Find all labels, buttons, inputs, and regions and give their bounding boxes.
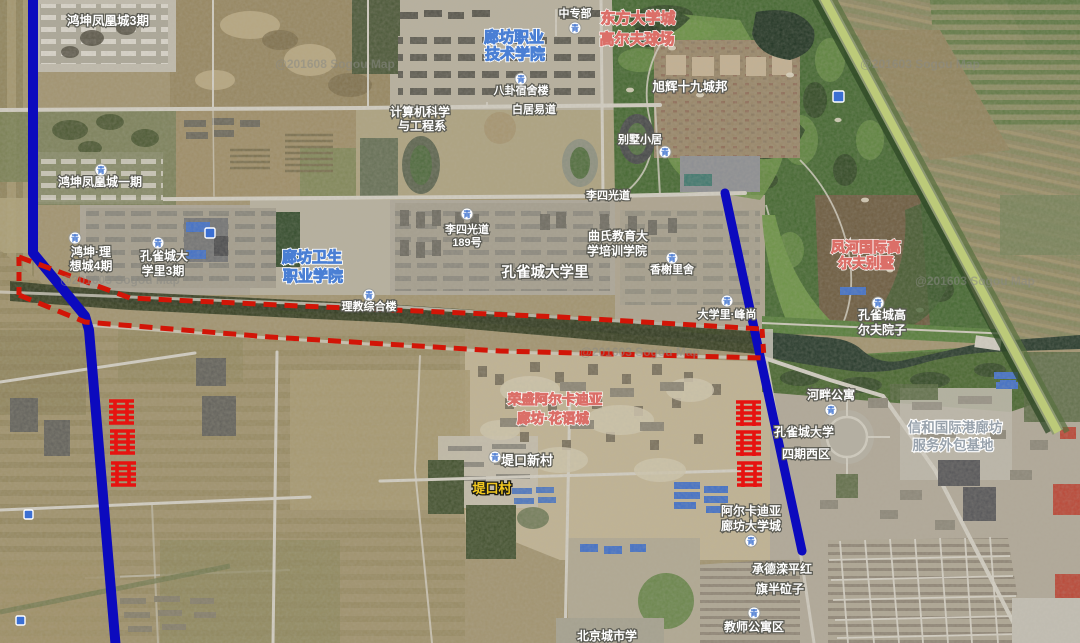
svg-text:与工程系: 与工程系 xyxy=(398,118,446,133)
svg-text:青: 青 xyxy=(747,536,755,546)
svg-text:尔夫院子: 尔夫院子 xyxy=(858,322,906,337)
svg-text:青: 青 xyxy=(874,298,882,308)
svg-text:青: 青 xyxy=(71,233,79,243)
svg-text:鸿坤凤凰城3期: 鸿坤凤凰城3期 xyxy=(67,13,149,28)
svg-text:青: 青 xyxy=(661,147,669,157)
svg-text:李四光道: 李四光道 xyxy=(585,188,630,202)
svg-text:孔雀城大学: 孔雀城大学 xyxy=(774,424,834,439)
svg-text:廊坊职业: 廊坊职业 xyxy=(484,28,544,46)
svg-text:青: 青 xyxy=(463,209,471,219)
svg-text:青: 青 xyxy=(517,74,525,84)
svg-text:廊坊卫生: 廊坊卫生 xyxy=(282,248,342,266)
svg-text:青: 青 xyxy=(154,238,162,248)
svg-text:高尔夫球场: 高尔夫球场 xyxy=(599,30,674,48)
svg-text:@201608 Sogou Map: @201608 Sogou Map xyxy=(275,57,395,71)
svg-text:堤口村: 堤口村 xyxy=(472,481,511,496)
svg-text:职业学院: 职业学院 xyxy=(283,267,343,285)
svg-text:189号: 189号 xyxy=(452,236,481,249)
svg-text:服务外包基地: 服务外包基地 xyxy=(913,437,994,453)
svg-text:孔雀城大学里: 孔雀城大学里 xyxy=(502,263,589,281)
svg-text:李四光道: 李四光道 xyxy=(444,222,489,236)
svg-text:曲氏教育大: 曲氏教育大 xyxy=(588,228,648,243)
svg-text:中专部: 中专部 xyxy=(559,6,592,20)
svg-text:青: 青 xyxy=(491,452,499,462)
svg-text:四期西区: 四期西区 xyxy=(782,446,830,461)
svg-text:承德滦平红: 承德滦平红 xyxy=(752,561,812,576)
svg-text:大学里·峰尚: 大学里·峰尚 xyxy=(698,307,757,321)
svg-text:想城4期: 想城4期 xyxy=(69,258,113,273)
svg-text:旭辉十九城邦: 旭辉十九城邦 xyxy=(651,79,728,94)
svg-text:青: 青 xyxy=(750,608,758,618)
svg-text:鸿坤·理: 鸿坤·理 xyxy=(71,244,111,259)
svg-text:教师公寓区: 教师公寓区 xyxy=(723,619,784,634)
svg-text:河畔公寓: 河畔公寓 xyxy=(806,387,855,402)
svg-text:青: 青 xyxy=(365,290,373,300)
svg-text:尔夫别墅: 尔夫别墅 xyxy=(838,255,894,271)
svg-text:廊坊·花语城: 廊坊·花语城 xyxy=(517,410,589,426)
svg-text:孔雀城高: 孔雀城高 xyxy=(858,307,906,322)
svg-text:堤口新村: 堤口新村 xyxy=(501,453,553,468)
svg-text:青: 青 xyxy=(571,23,579,33)
svg-text:凤河国际高: 凤河国际高 xyxy=(831,239,901,255)
svg-text:孔雀城大: 孔雀城大 xyxy=(140,248,188,263)
svg-text:计算机科学: 计算机科学 xyxy=(390,104,450,119)
svg-text:@201603 Sogou Map: @201603 Sogou Map xyxy=(580,345,700,359)
svg-text:旗半砬子: 旗半砬子 xyxy=(756,581,804,596)
svg-text:别墅小居: 别墅小居 xyxy=(617,132,662,146)
svg-text:@201603 Sogou Map: @201603 Sogou Map xyxy=(860,57,980,71)
svg-text:@201603 Sogou Map: @201603 Sogou Map xyxy=(60,273,180,287)
svg-text:青: 青 xyxy=(668,253,676,263)
svg-text:东方大学城: 东方大学城 xyxy=(600,9,675,27)
svg-text:青: 青 xyxy=(97,165,105,175)
svg-text:阿尔卡迪亚: 阿尔卡迪亚 xyxy=(721,503,781,518)
svg-text:北京城市学: 北京城市学 xyxy=(577,628,637,643)
svg-text:青: 青 xyxy=(827,405,835,415)
svg-text:信和国际港廊坊: 信和国际港廊坊 xyxy=(908,419,1003,435)
svg-text:学培训学院: 学培训学院 xyxy=(587,243,647,258)
svg-text:技术学院: 技术学院 xyxy=(485,45,545,63)
svg-text:@201603 Sogou Map: @201603 Sogou Map xyxy=(915,274,1035,288)
svg-text:白居易道: 白居易道 xyxy=(512,102,556,116)
svg-text:廊坊大学城: 廊坊大学城 xyxy=(721,518,781,533)
svg-text:荣盛阿尔卡迪亚: 荣盛阿尔卡迪亚 xyxy=(507,391,603,407)
svg-text:青: 青 xyxy=(723,296,731,306)
